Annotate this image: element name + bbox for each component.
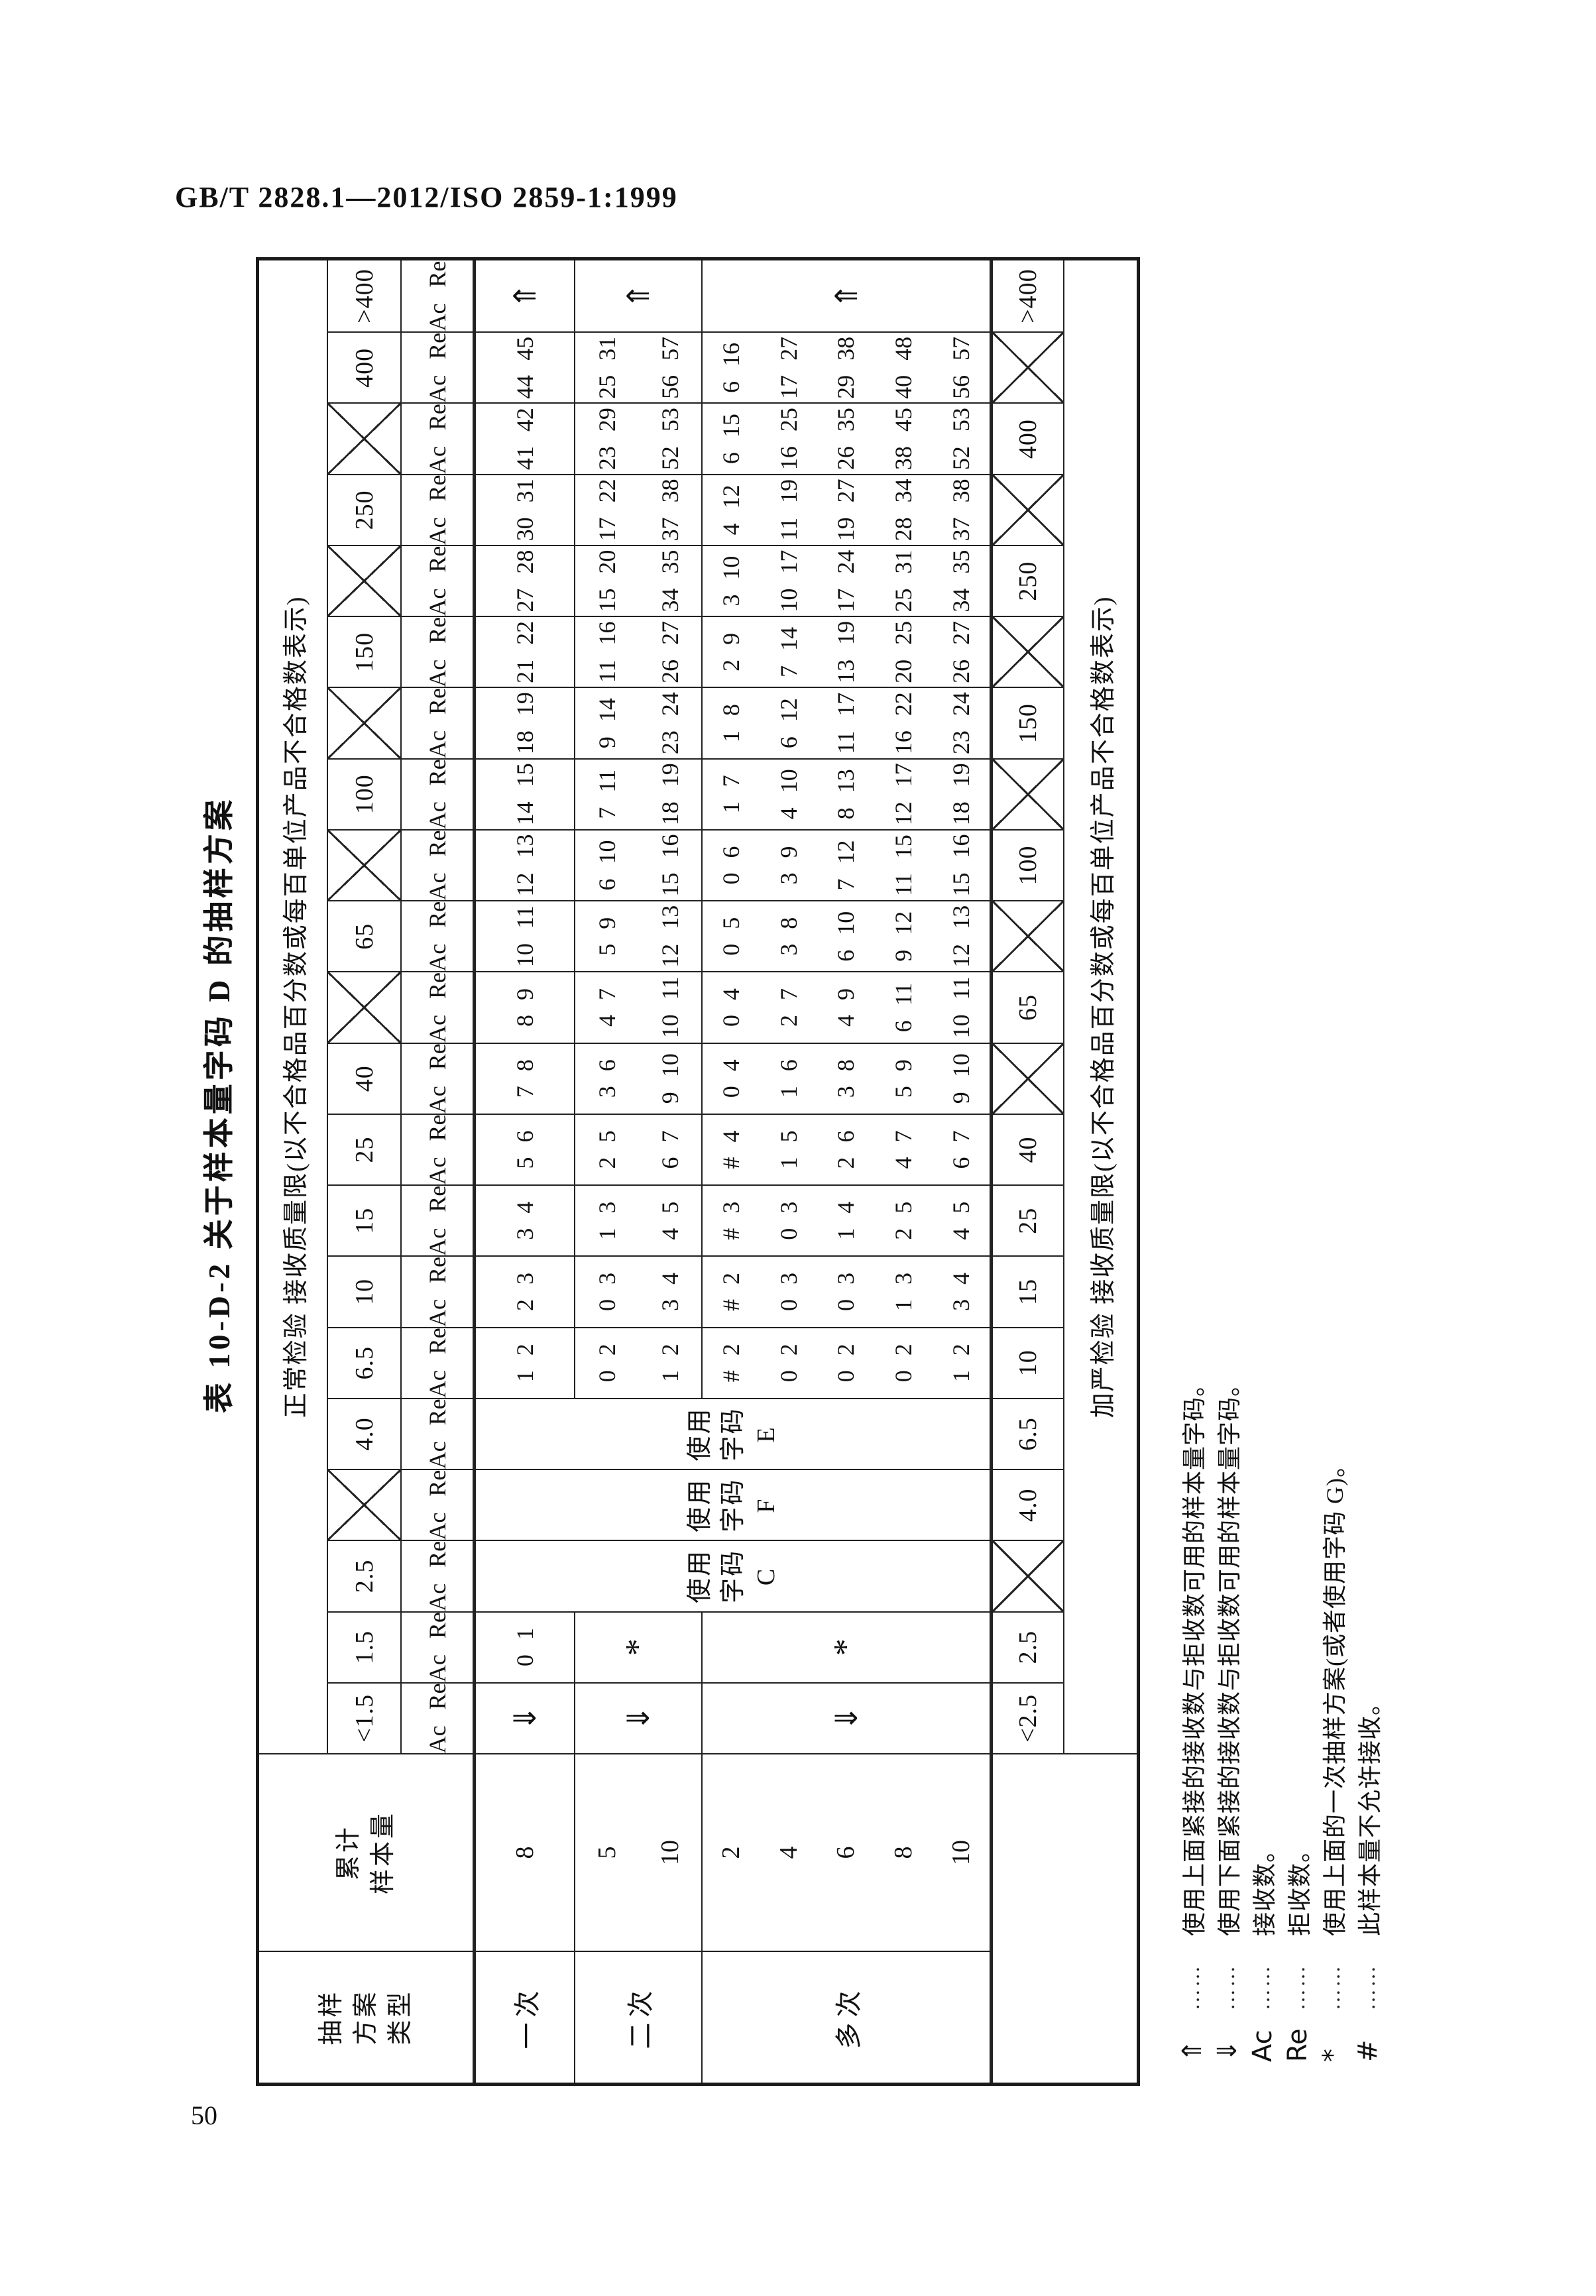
ac-value: 0 [832,1370,860,1382]
re-value: 2 [656,1344,684,1355]
cum-sample-size-cell: 510 [575,1753,703,1951]
ac-value: 10 [947,1014,975,1038]
ac-label: Ac [424,1228,451,1256]
ac-re-pair: 1117 [832,693,860,754]
aql-tightened-value-cell: 250 [993,545,1064,616]
ac-re-pair: 910 [947,1053,975,1104]
re-label: Re [424,261,451,288]
aql-tightened-value-cell: 2.5 [993,1611,1064,1682]
aql-normal-value-cell: 150 [328,616,402,687]
footnote-symbol: # [1353,2010,1383,2062]
re-value: 35 [656,550,684,574]
multiple-plan-cell: 4121119192728343738 [703,474,993,545]
cum-sample-size-cell: 8 [476,1753,575,1951]
re-value: 38 [656,479,684,502]
aql-tightened-value: 6.5 [1013,1417,1043,1451]
re-value: 17 [889,763,917,787]
re-value: 5 [775,1130,803,1142]
aql-normal-value-cell: <1.5 [328,1682,402,1753]
single-plan-cell: 4142 [476,402,575,473]
ac-re-pair: 1516 [656,834,684,897]
ac-re-pair: 49 [832,988,860,1027]
ac-value: 6 [947,1157,975,1169]
ac-re-pair: 910 [656,1053,684,1104]
ac-value: 3 [717,595,745,606]
re-value: 2 [593,1344,621,1355]
ac-label: Ac [424,873,451,901]
re-value: 4 [717,1059,745,1071]
footnote-symbol: Ac [1247,2010,1278,2062]
ac-re-pair: 4142 [511,408,539,470]
ac-value: 44 [511,375,539,399]
re-value: 2 [717,1344,745,1355]
double-plan-cell: 1345 [575,1184,703,1255]
re-value: 35 [947,550,975,574]
ac-value: 56 [656,375,684,399]
ac-re-pair: 410 [775,769,803,819]
footnote-text: 接收数。 [1245,1838,1280,1936]
re-value: 24 [947,692,975,716]
ac-re-pair: #3 [717,1202,745,1240]
ac-re-pair: 1819 [511,692,539,754]
double-plan-cell: 2567 [575,1114,703,1184]
ac-re-pair: 714 [775,627,803,677]
ac-re-pair: #2 [717,1273,745,1311]
double-plan-cell: 17223738 [575,474,703,545]
ac-value: 20 [889,660,917,683]
ac-value: 15 [656,873,684,897]
ac-re-pair: 13 [593,1202,621,1240]
ac-value: 7 [832,879,860,891]
ac-value: 0 [593,1370,621,1382]
re-value: 4 [717,1130,745,1142]
ac-label: Ac [424,944,451,972]
aql-tightened-crossed-cell [993,616,1064,687]
re-value: 3 [775,1273,803,1285]
footnote-symbol: ⇑ [1177,2010,1208,2062]
ac-re-header-cell: AcRe [402,1540,476,1611]
ac-re-pair: 3845 [889,408,917,470]
aql-normal-crossed-cell [328,829,402,900]
ac-value: 34 [947,589,975,612]
ac-value: 0 [889,1370,917,1382]
ac-value: 0 [717,944,745,956]
ac-value: 17 [593,517,621,541]
double-plan-cell: * [575,1611,703,1682]
re-value: 24 [832,550,860,574]
re-value: 25 [775,408,803,431]
ac-re-pair: 2122 [511,621,539,683]
single-plan-cell: 1213 [476,829,575,900]
ac-value: 0 [511,1654,539,1666]
ac-value: 34 [656,589,684,612]
ac-label: Ac [424,1441,451,1469]
ac-label: Ac [424,1299,451,1327]
table-title: 表 10-D-2 关于样本量字码 D 的抽样方案 [195,740,239,1469]
aql-tightened-value-cell: 6.5 [993,1398,1064,1469]
ac-re-header-cell: AcRe [402,900,476,971]
aql-tightened-value: 150 [1013,703,1043,743]
ac-re-pair: 47 [889,1130,917,1169]
ac-value: 6 [889,1020,917,1032]
ac-re-pair: 914 [593,698,621,748]
ac-label: Ac [424,1513,451,1540]
re-value: 2 [775,1344,803,1355]
aql-normal-value: 25 [350,1136,379,1163]
ac-value: # [717,1370,745,1382]
double-plan-cell: ⇓ [575,1682,703,1753]
re-value: 12 [775,698,803,722]
double-plan-cell: ⇑ [575,260,703,331]
re-value: 22 [511,621,539,645]
ac-value: 26 [947,660,975,683]
aql-tightened-value: 4.0 [1013,1488,1043,1522]
re-value: 29 [593,408,621,431]
re-value: 27 [656,621,684,645]
ac-value: 10 [656,1014,684,1038]
aql-tightened-value-cell: 100 [993,829,1064,900]
ac-re-header-cell: AcRe [402,829,476,900]
ac-re-pair: 45 [656,1202,684,1240]
ac-re-pair: 1217 [889,763,917,825]
ac-re-pair: 01 [511,1628,539,1666]
ac-re-pair: 2324 [947,692,975,754]
ac-value: 0 [775,1228,803,1240]
aql-tightened-value-cell: 65 [993,971,1064,1042]
ac-value: 23 [656,730,684,754]
ac-value: 18 [656,801,684,825]
ac-re-pair: 45 [947,1202,975,1240]
aql-normal-value: 250 [350,490,379,530]
re-value: 9 [889,1059,917,1071]
re-value: 7 [656,1130,684,1142]
re-label: Re [424,546,451,573]
ac-value: 11 [832,731,860,754]
re-value: 4 [717,988,745,1000]
aql-tightened-value: 100 [1013,846,1043,886]
ac-value: 12 [656,944,684,968]
ac-value: 13 [832,660,860,683]
ac-value: 23 [593,446,621,470]
re-label: Re [424,1399,451,1425]
multiple-plan-cell: 18612111716222324 [703,687,993,758]
ac-re-pair: 310 [717,556,745,606]
re-value: 3 [775,1202,803,1214]
ac-value: 3 [775,944,803,956]
aql-normal-value-cell: 4.0 [328,1398,402,1469]
ac-value: 1 [717,730,745,742]
ac-re-pair: 26 [832,1130,860,1169]
re-value: 10 [832,911,860,935]
ac-value: 21 [511,660,539,683]
ac-value: 18 [511,730,539,754]
aql-tightened-value: 40 [1013,1136,1043,1163]
aql-tightened-value: <2.5 [1013,1694,1043,1743]
ac-re-header-cell: AcRe [402,1255,476,1326]
ac-re-pair: 14 [832,1202,860,1240]
footnote-item: Re……拒收数。 [1280,1372,1315,2062]
aql-normal-value-cell: 100 [328,758,402,829]
re-value: 2 [717,1273,745,1285]
re-value: 5 [889,1202,917,1214]
aql-normal-value: 100 [350,774,379,814]
ac-re-pair: #4 [717,1130,745,1169]
ac-re-pair: 3738 [656,479,684,541]
ac-value: 40 [889,375,917,399]
normal-aql-title-cell: 正常检验 接收质量限(以不合格品百分数或每百单位产品不合格数表示) [259,260,328,1753]
re-value: 45 [889,408,917,431]
re-value: 6 [717,846,745,858]
ac-re-pair: 2627 [656,621,684,683]
ac-re-pair: 2834 [889,479,917,541]
double-plan-cell: 0334 [575,1255,703,1326]
ac-value: 4 [832,1015,860,1027]
ac-re-pair: 47 [593,988,621,1027]
re-value: 12 [717,485,745,508]
re-value: 24 [656,692,684,716]
ac-value: 10 [511,943,539,967]
footnote-item: ⇓……使用下面紧接的接收数与拒收数可用的样本量字码。 [1210,1372,1245,2062]
ac-label: Ac [424,1654,451,1682]
ac-re-pair: 610 [593,840,621,891]
footnote-text: 拒收数。 [1281,1838,1315,1936]
multiple-plan-cell: 29714131920252627 [703,616,993,687]
ac-re-pair: 02 [889,1344,917,1382]
ac-re-pair: 03 [593,1273,621,1311]
multiple-plan-cell: #303142545 [703,1184,993,1255]
asterisk-mark: * [829,1638,864,1656]
ac-value: 6 [656,1157,684,1169]
re-label: Re [424,1470,451,1497]
multiple-plan-cell: 04163859910 [703,1043,993,1114]
ac-label: Ac [424,730,451,758]
aql-tightened-value-cell: 25 [993,1184,1064,1255]
re-value: 34 [889,479,917,502]
double-plan-cell: 11162627 [575,616,703,687]
re-value: 7 [717,775,745,787]
double-plan-cell: 15203435 [575,545,703,616]
ac-re-pair: 610 [832,911,860,962]
ac-label: Ac [424,375,451,403]
ac-value: 1 [511,1370,539,1382]
ac-re-pair: 1722 [593,479,621,541]
ac-label: Ac [424,1725,451,1753]
re-value: 4 [832,1202,860,1214]
re-value: 31 [889,550,917,574]
ac-value: 5 [511,1157,539,1169]
double-plan-cell: 23295253 [575,402,703,473]
footnote-text: 此样本量不允许接收。 [1351,1691,1385,1936]
ac-value: 9 [656,1092,684,1104]
re-value: 10 [717,556,745,580]
ac-value: 8 [832,807,860,819]
re-label: Re [424,1683,451,1709]
ac-re-pair: 13 [889,1273,917,1311]
ac-value: 26 [832,446,860,470]
ac-value: 25 [889,589,917,612]
footnote-item: *……使用上面的一次抽样方案(或者使用字码 G)。 [1315,1372,1350,2062]
ac-value: 8 [511,1015,539,1027]
ac-re-pair: 612 [775,698,803,748]
re-value: 3 [889,1273,917,1285]
cum-sample-size-value: 2 [716,1847,746,1859]
re-value: 11 [593,770,621,793]
re-label: Re [424,1257,451,1283]
footnote-list: ⇑……使用上面紧接的接收数与拒收数可用的样本量字码。⇓……使用下面紧接的接收数与… [1174,1372,1385,2062]
ac-value: 1 [889,1299,917,1311]
aql-tightened-value: 2.5 [1013,1631,1043,1664]
footnote-item: ⇑……使用上面紧接的接收数与拒收数可用的样本量字码。 [1174,1372,1210,2062]
ac-re-pair: 03 [775,1273,803,1311]
ac-re-pair: 1115 [889,834,917,896]
re-label: Re [424,475,451,501]
ac-re-pair: 3738 [947,479,975,541]
double-plan-cell: 25315657 [575,331,703,402]
re-label: Re [424,1114,451,1141]
re-label: Re [424,1186,451,1212]
cum-sample-size-value: 10 [655,1840,685,1865]
aql-tightened-crossed-cell [993,900,1064,971]
re-value: 3 [593,1273,621,1285]
aql-normal-crossed-cell [328,545,402,616]
ac-re-header-cell: AcRe [402,1327,476,1398]
ac-re-pair: 1116 [593,621,621,683]
cum-sample-size-value: 8 [510,1847,540,1859]
re-label: Re [424,1612,451,1638]
re-value: 11 [511,905,539,929]
re-label: Re [424,1328,451,1354]
ac-value: 29 [832,375,860,399]
aql-normal-value: 65 [350,923,379,950]
page-number: 50 [191,2100,217,2131]
ac-value: 28 [889,517,917,541]
aql-normal-value-cell: 65 [328,900,402,971]
re-value: 10 [656,1053,684,1077]
re-value: 28 [511,550,539,574]
re-value: 5 [717,917,745,929]
re-value: 15 [889,834,917,858]
aql-normal-value: <1.5 [350,1694,379,1743]
ac-value: 1 [717,801,745,813]
ac-value: 12 [889,801,917,825]
ac-re-pair: 2627 [947,621,975,683]
aql-normal-value: 4.0 [350,1417,379,1451]
re-value: 19 [832,621,860,645]
re-value: 9 [511,988,539,1000]
double-plan-cell: 6101516 [575,829,703,900]
ac-re-pair: 5657 [947,337,975,399]
ac-re-pair: 1011 [511,905,539,967]
aql-normal-value: 40 [350,1065,379,1092]
ac-re-header-cell: AcRe [402,474,476,545]
ac-value: 4 [775,807,803,819]
re-value: 10 [593,840,621,864]
ac-value: 2 [832,1157,860,1169]
ac-label: Ac [424,1086,451,1114]
multiple-plan-cell: 6161727293840485657 [703,331,993,402]
re-value: 17 [832,693,860,717]
aql-normal-value: 10 [350,1279,379,1305]
aql-tightened-value-cell: <2.5 [993,1682,1064,1753]
ac-re-pair: 1213 [947,905,975,968]
ac-label: Ac [424,1583,451,1611]
aql-tightened-value: 250 [1013,561,1043,601]
multiple-plan-cell: ⇓ [703,1682,993,1753]
single-plan-cell: 89 [476,971,575,1042]
ac-re-pair: 2728 [511,550,539,612]
re-value: 12 [832,840,860,864]
ac-value: 2 [775,1015,803,1027]
cum-sample-size-header: 累计样本量 [259,1753,476,1951]
re-value: 10 [947,1053,975,1077]
ac-value: 56 [947,375,975,399]
ac-value: 3 [511,1228,539,1240]
ac-value: 0 [717,1086,745,1098]
re-value: 16 [593,621,621,645]
multiple-plan-cell: #415264767 [703,1114,993,1184]
aql-tightened-crossed-cell [993,1540,1064,1611]
ac-re-pair: 34 [656,1273,684,1311]
ac-re-pair: 1516 [947,834,975,897]
re-value: 3 [832,1273,860,1285]
multiple-plan-cell: ⇑ [703,260,993,331]
ac-value: 9 [593,736,621,748]
re-value: 4 [511,1202,539,1214]
footnote-text: 使用上面的一次抽样方案(或者使用字码 G)。 [1316,1453,1350,1936]
ac-value: 9 [889,950,917,962]
ac-value: 17 [775,375,803,399]
re-value: 11 [656,977,684,1000]
re-value: 38 [832,337,860,361]
ac-re-pair: 3435 [656,550,684,612]
ac-re-header-cell: AcRe [402,616,476,687]
ac-value: # [717,1157,745,1169]
re-value: 5 [593,1130,621,1142]
ac-value: 15 [947,873,975,897]
multiple-plan-cell: 6151625263538455253 [703,402,993,473]
ac-re-pair: 59 [593,917,621,956]
ac-re-pair: 18 [717,704,745,742]
ac-value: 2 [593,1157,621,1169]
re-value: 5 [947,1202,975,1214]
ac-value: 52 [656,446,684,470]
aql-normal-value: 400 [350,348,379,388]
re-value: 6 [511,1130,539,1142]
plan-type-label-cell: 多次 [703,1951,993,2083]
re-value: 13 [832,769,860,793]
aql-normal-value-cell: 10 [328,1255,402,1326]
ac-re-header-cell: AcRe [402,1682,476,1753]
ac-label: Ac [424,517,451,545]
ac-re-pair: 2531 [593,337,621,399]
re-value: 16 [717,343,745,367]
single-plan-cell: 56 [476,1114,575,1184]
ac-re-header-cell: AcRe [402,687,476,758]
footnote-symbol: * [1318,2010,1348,2062]
ac-value: 4 [656,1228,684,1240]
standard-reference: GB/T 2828.1—2012/ISO 2859-1:1999 [175,180,678,214]
ac-value: 9 [947,1092,975,1104]
aql-tightened-crossed-cell [993,474,1064,545]
plan-type-label: 一次 [506,1986,544,2049]
re-value: 48 [889,337,917,361]
double-plan-cell: 0212 [575,1327,703,1398]
up-arrow-icon: ⇑ [831,283,862,309]
ac-re-header-cell: AcRe [402,971,476,1042]
ac-re-pair: 1927 [832,479,860,541]
aql-normal-value: 2.5 [350,1560,379,1593]
aql-tightened-crossed-cell [993,1043,1064,1114]
